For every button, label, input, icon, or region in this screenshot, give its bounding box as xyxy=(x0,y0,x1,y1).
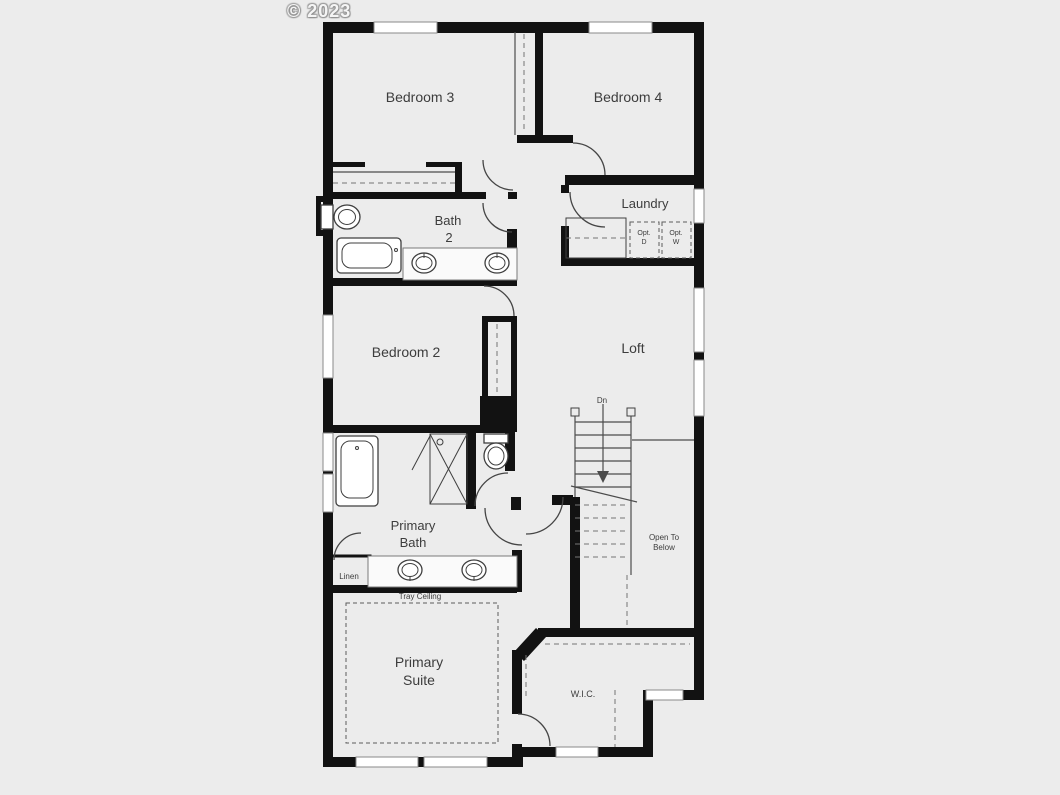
door-arc-bedroom3 xyxy=(483,160,513,190)
room-label-bath2-line1: Bath xyxy=(435,213,462,228)
opt-dryer-label-line1: Opt. xyxy=(637,230,650,237)
room-label-wic: W.I.C. xyxy=(571,689,596,699)
window-laundry xyxy=(694,189,704,223)
shower-door-line xyxy=(412,436,430,470)
window-wic-1 xyxy=(556,747,598,757)
wall-laundry-left-upper xyxy=(561,185,569,193)
door-arc-bedroom4 xyxy=(573,143,605,175)
wall-bedroom4-southwest xyxy=(517,135,573,143)
stairs-down xyxy=(571,404,637,628)
room-label-loft: Loft xyxy=(621,340,644,356)
opt-washer-label-line1: Opt. xyxy=(669,230,682,237)
room-label-bedroom3: Bedroom 3 xyxy=(386,89,455,105)
wall-bed2-closet-left xyxy=(482,322,488,398)
door-arc-toilet-room xyxy=(475,473,508,506)
wall-wic-diagonal xyxy=(514,628,546,661)
room-label-primary-suite-line1: Primary xyxy=(395,654,443,670)
toilet-bath2-fixture xyxy=(321,205,360,229)
opt-washer-label-line2: W xyxy=(673,239,680,246)
shower-head xyxy=(437,439,443,445)
wall-bedroom4-laundry-divider xyxy=(565,175,694,185)
window-bedroom3 xyxy=(374,22,437,33)
wall-bed2-closet-top xyxy=(482,316,517,322)
room-label-primary-suite-line2: Suite xyxy=(403,672,435,688)
wall-vestibule-stub xyxy=(511,497,521,510)
toilet-tank xyxy=(321,205,333,229)
sink-primary-right-fixture xyxy=(462,560,486,581)
room-label-laundry: Laundry xyxy=(622,196,669,211)
window-bedroom4 xyxy=(589,22,652,33)
room-label-bedroom2: Bedroom 2 xyxy=(372,344,441,360)
wall-chase-right xyxy=(535,28,543,143)
bathtub-bath2-fixture xyxy=(337,238,401,273)
stair-break-line xyxy=(571,486,637,502)
room-label-primary-bath-line2: Bath xyxy=(400,535,427,550)
wall-bed3-closet-top-a xyxy=(333,162,365,167)
open-to-below-label-line2: Below xyxy=(653,543,675,552)
wall-toilet2-top xyxy=(476,425,515,433)
floor-plan-page: © 2023 xyxy=(0,0,1060,795)
toilet-bowl xyxy=(334,205,360,229)
wall-toilet-niche-left xyxy=(316,196,321,236)
stair-direction-arrowhead xyxy=(597,471,609,483)
door-arc-primary-suite xyxy=(518,714,550,746)
wall-bed2-closet-right xyxy=(511,322,517,398)
stairs-down-label: Dn xyxy=(597,396,607,405)
stair-newel-right xyxy=(627,408,635,416)
open-to-below-label-line1: Open To xyxy=(649,533,680,542)
linen-label: Linen xyxy=(339,572,359,581)
room-label-bath2-line2: 2 xyxy=(445,230,452,245)
wall-left-exterior xyxy=(323,22,333,767)
door-arc-bath2 xyxy=(483,203,512,232)
window-loft-2 xyxy=(694,360,704,416)
opt-dryer-label-line2: D xyxy=(641,239,646,246)
stair-newel-left xyxy=(571,408,579,416)
sink-primary-left-fixture xyxy=(398,560,422,581)
sink-bath2-right-fixture xyxy=(485,253,509,273)
wall-laundry-bottom xyxy=(561,258,694,266)
room-label-bedroom4: Bedroom 4 xyxy=(594,89,663,105)
wall-suite-east xyxy=(512,650,522,714)
floor-plan-svg: Bedroom 3 Bedroom 4 Laundry Bath 2 Bedro… xyxy=(0,0,1060,795)
wall-suite-door-stub xyxy=(512,744,522,758)
wall-bath2-top xyxy=(333,192,486,199)
door-arc-bedroom2 xyxy=(484,286,514,316)
tray-ceiling-label: Tray Ceiling xyxy=(399,592,441,601)
wall-stairwell-west xyxy=(570,497,580,632)
window-loft-1 xyxy=(694,288,704,352)
window-primary-bath-2 xyxy=(323,474,333,512)
bathtub-primary-fixture xyxy=(336,436,378,506)
wall-bath2-top-stub xyxy=(508,192,517,199)
window-primary-suite-2 xyxy=(424,757,487,767)
wall-primary-bath-top xyxy=(323,425,480,433)
wall-wic-top xyxy=(538,628,694,637)
wall-bed3-closet-return xyxy=(455,162,462,197)
primary-bath-vanity-counter xyxy=(368,556,517,587)
wall-bed3-closet-top-b xyxy=(426,162,460,167)
room-label-primary-bath-line1: Primary xyxy=(391,518,436,533)
window-primary-suite-1 xyxy=(356,757,418,767)
sink-bath2-left-fixture xyxy=(412,253,436,273)
shower-primary-fixture xyxy=(412,434,467,504)
door-arc-laundry xyxy=(570,192,605,227)
toilet-primary-fixture xyxy=(484,434,508,469)
window-bedroom2 xyxy=(323,315,333,378)
toilet-tank xyxy=(484,434,508,443)
wall-bottom-primary-suite xyxy=(323,757,523,767)
window-wic-2 xyxy=(646,690,683,700)
window-primary-bath-1 xyxy=(323,433,333,471)
door-arc-primary-bath xyxy=(485,508,522,545)
